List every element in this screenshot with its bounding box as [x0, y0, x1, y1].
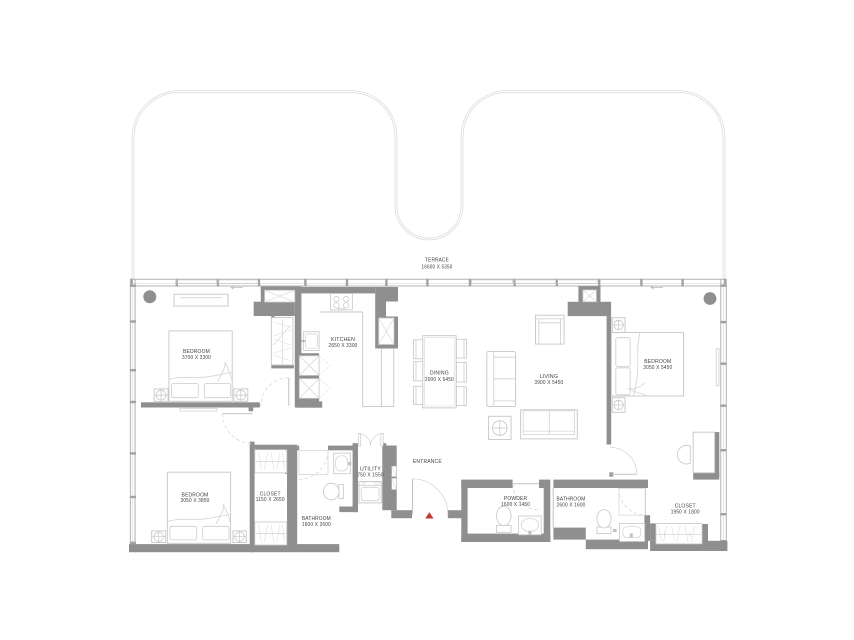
svg-text:3050 X 5450: 3050 X 5450	[643, 365, 672, 371]
svg-text:1600 X 2600: 1600 X 2600	[302, 522, 331, 528]
svg-text:2000 X 5450: 2000 X 5450	[425, 377, 454, 383]
svg-text:ENTRANCE: ENTRANCE	[413, 459, 442, 465]
svg-text:750 X 1550: 750 X 1550	[357, 473, 384, 479]
svg-text:BATHROOM: BATHROOM	[557, 496, 586, 502]
svg-text:1950 X 1800: 1950 X 1800	[671, 509, 700, 515]
svg-text:1600 X 1450: 1600 X 1450	[501, 502, 530, 508]
svg-text:3050 X 3850: 3050 X 3850	[181, 498, 210, 504]
svg-text:2600 X 1600: 2600 X 1600	[557, 503, 586, 509]
svg-text:3900 X 5450: 3900 X 5450	[534, 380, 563, 386]
svg-text:16600 X 5350: 16600 X 5350	[422, 264, 453, 270]
svg-text:DINING: DINING	[430, 371, 449, 377]
svg-text:1150 X 2650: 1150 X 2650	[256, 497, 285, 503]
svg-text:TERRACE: TERRACE	[425, 258, 449, 264]
svg-text:3700 X 3300: 3700 X 3300	[182, 355, 211, 361]
svg-text:2650 X 3300: 2650 X 3300	[329, 343, 358, 349]
